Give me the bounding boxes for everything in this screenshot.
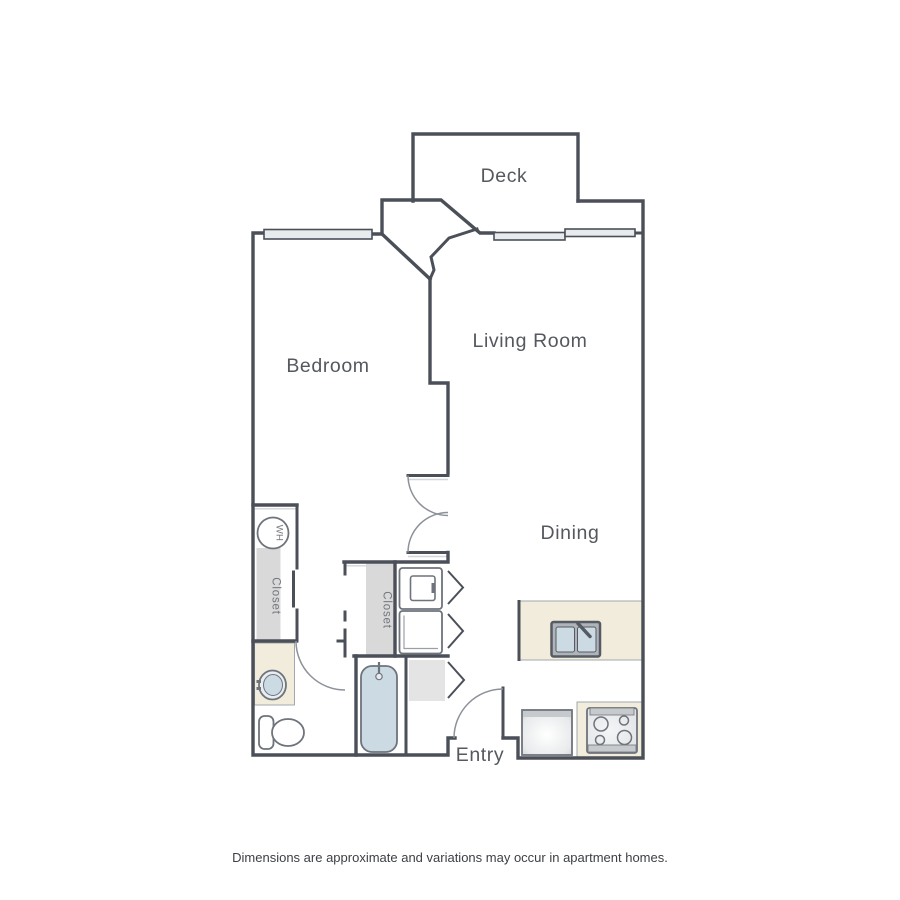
toilet-bowl [272,719,304,746]
dryer-door [411,576,436,601]
room-label-entry: Entry [456,744,505,766]
kitchen-sink-basin-left [556,627,575,652]
floor-plan-page: Deck Living Room Bedroom Dining Entry Cl… [0,0,900,900]
refrigerator [522,710,572,755]
vanity-faucet-handle [257,680,262,683]
vanity-sink-basin [264,675,283,696]
double-door-arc-bottom [408,513,448,553]
disclaimer-text: Dimensions are approximate and variation… [232,850,668,865]
bifold-door-icon [448,614,463,648]
bedroom-closet-label: Closet [270,577,282,614]
bathtub-drain [376,673,382,679]
bedroom-window [264,230,372,240]
deck-door-open-leaf [430,229,477,279]
toilet [259,716,304,749]
floor-plan-svg: Deck Living Room Bedroom Dining Entry Cl… [0,0,900,900]
washer [400,611,443,654]
double-door-arc-top [408,476,448,516]
bedroom-living-divider-wall [430,279,448,473]
hall-closet-left-wall [338,562,345,656]
room-label-bedroom: Bedroom [286,355,369,377]
storage-nook [409,660,445,701]
bifold-door-icon [448,571,463,604]
bathtub [361,662,397,752]
deck-sliding-door-panel-right [565,229,635,237]
vanity-faucet-handle [257,687,262,690]
deck-sliding-door-panel-left [494,233,565,241]
hall-closet-label: Closet [381,591,393,628]
bifold-door-icon [448,662,464,698]
dryer-latch [432,583,435,593]
bedroom-closet-sliding-doors [294,505,298,641]
water-heater-label: WH [274,525,285,542]
room-label-deck: Deck [481,165,528,187]
stove-front-band [588,745,636,752]
room-label-dining: Dining [541,522,600,544]
stove-back-band [590,708,634,715]
bathroom-door-arc [296,641,345,690]
room-label-living-room: Living Room [473,330,588,352]
laundry-stack [400,568,443,654]
bedroom-corner-diagonal-wall [382,234,430,279]
bifold-doors [448,571,464,698]
kitchen-sink [552,622,601,657]
entry-door-arc [454,689,503,738]
right-exterior-wall [503,201,643,758]
stove [587,708,637,753]
refrigerator-top-band [523,711,571,717]
